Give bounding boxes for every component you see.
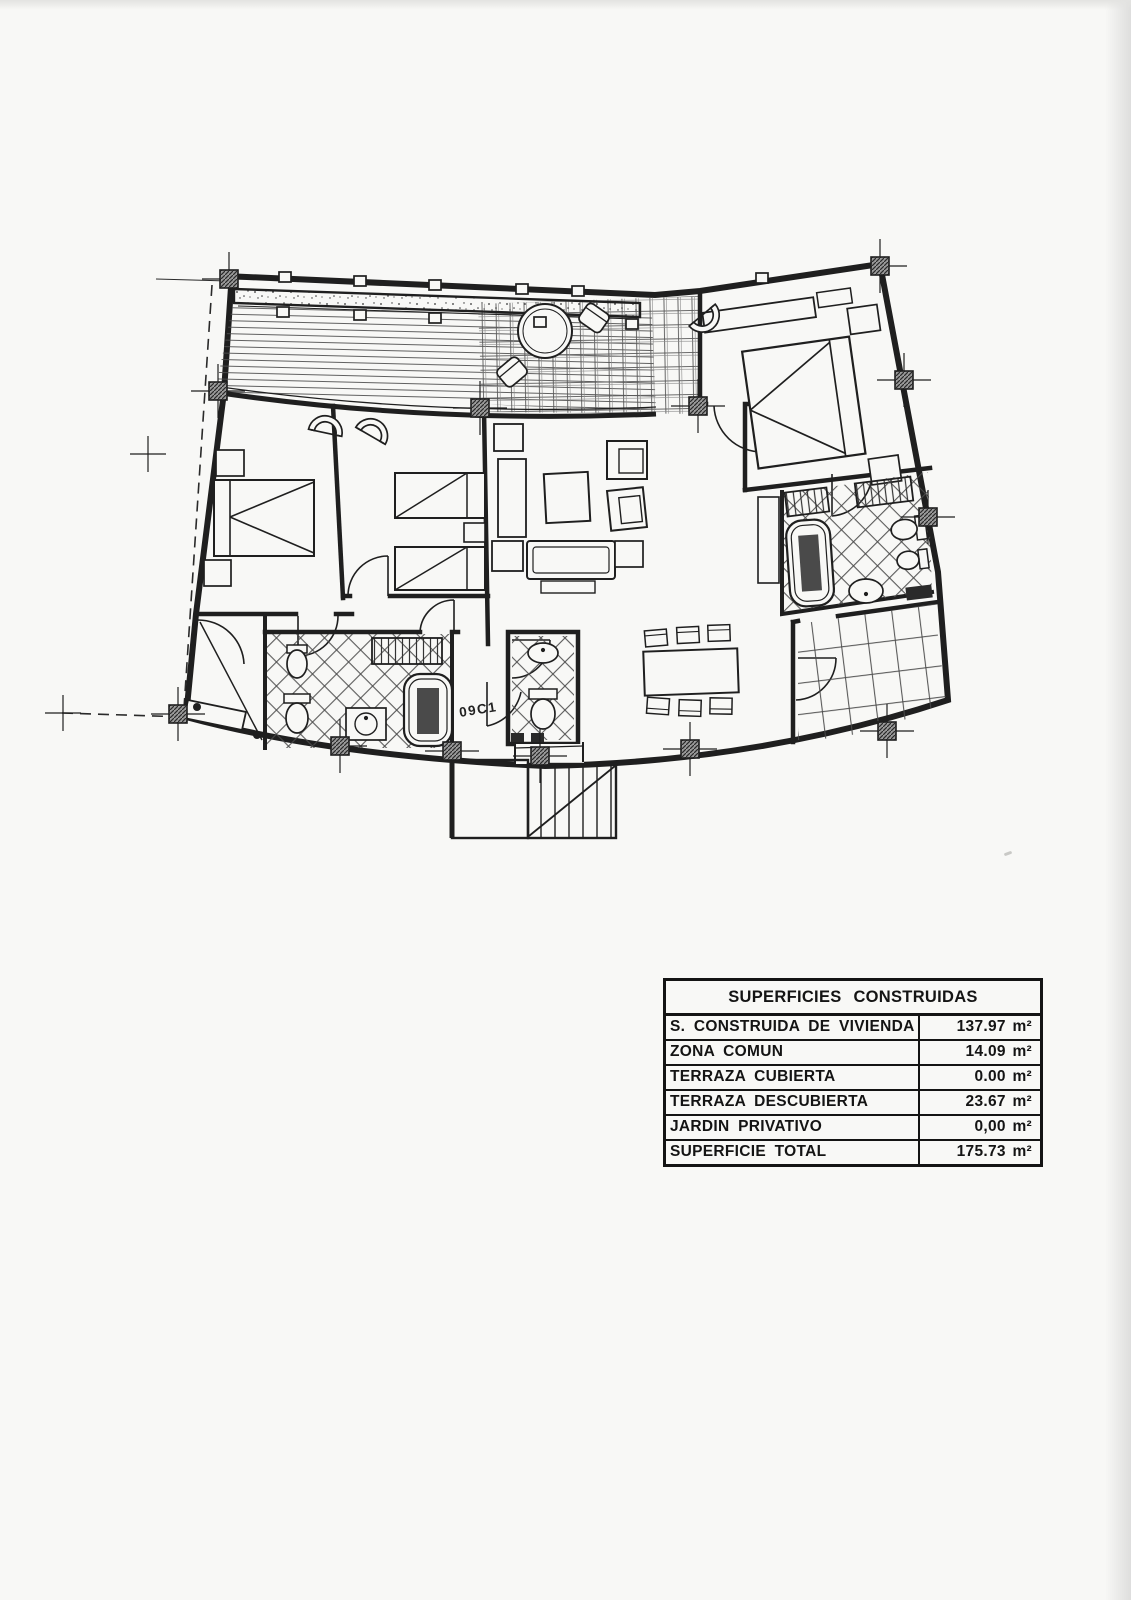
dining-table	[643, 648, 738, 695]
tiled-patio-floor	[798, 604, 946, 740]
scanned-floor-plan-page: 09C1 SUPERFICIES CONSTRUIDAS S. CONSTRUI…	[0, 0, 1131, 1600]
dining-chair	[646, 697, 669, 714]
row-label: TERRAZA DESCUBIERTA	[666, 1091, 920, 1114]
row-value: 14.09 m²	[920, 1041, 1040, 1064]
sink	[849, 579, 883, 603]
toilet	[284, 694, 310, 733]
sink	[528, 643, 558, 663]
round-table	[518, 304, 572, 358]
dining-set	[643, 625, 738, 717]
wardrobe-shelf	[785, 488, 830, 517]
row-value: 137.97 m²	[920, 1016, 1040, 1039]
single-bed	[395, 473, 485, 518]
table-row: JARDIN PRIVATIVO 0,00 m²	[666, 1116, 1040, 1141]
table-row: SUPERFICIE TOTAL 175.73 m²	[666, 1141, 1040, 1164]
double-bed	[742, 337, 865, 469]
single-bed	[395, 547, 485, 590]
row-label: ZONA COMUN	[666, 1041, 920, 1064]
sink	[346, 708, 386, 740]
row-value: 0.00 m²	[920, 1066, 1040, 1089]
row-value: 175.73 m²	[920, 1141, 1040, 1164]
coffee-table	[544, 472, 591, 523]
table-row: ZONA COMUN 14.09 m²	[666, 1041, 1040, 1066]
nightstand	[847, 304, 880, 334]
areas-table-title: SUPERFICIES CONSTRUIDAS	[666, 981, 1040, 1016]
wardrobe-shelf	[372, 638, 442, 664]
tv-cabinet	[494, 424, 523, 451]
survey-cross	[45, 695, 81, 731]
table-row: TERRAZA CUBIERTA 0.00 m²	[666, 1066, 1040, 1091]
floor-plan-drawing	[0, 0, 1131, 1600]
row-label: JARDIN PRIVATIVO	[666, 1116, 920, 1139]
row-value: 0,00 m²	[920, 1116, 1040, 1139]
toilet	[529, 689, 557, 729]
dining-chair	[710, 698, 732, 714]
table-row: S. CONSTRUIDA DE VIVIENDA 137.97 m²	[666, 1016, 1040, 1041]
tv-cabinet	[492, 541, 523, 571]
dining-chair	[644, 629, 667, 647]
nightstand	[204, 560, 231, 586]
bathroom-right	[784, 472, 933, 612]
dining-chair	[677, 626, 700, 643]
stairs	[452, 760, 616, 838]
row-label: SUPERFICIE TOTAL	[666, 1141, 920, 1164]
wc	[511, 636, 574, 742]
row-value: 23.67 m²	[920, 1091, 1040, 1114]
nightstand	[216, 450, 244, 476]
bidet	[287, 645, 307, 678]
dining-chair	[679, 700, 702, 717]
nightstand	[464, 523, 485, 542]
bathroom-left	[267, 634, 452, 748]
armchair	[607, 487, 647, 531]
side-table	[615, 541, 643, 567]
tv-cabinet	[498, 459, 526, 537]
table-row: TERRAZA DESCUBIERTA 23.67 m²	[666, 1091, 1040, 1116]
dining-chair	[708, 625, 731, 642]
survey-cross	[130, 436, 166, 472]
areas-table: SUPERFICIES CONSTRUIDAS S. CONSTRUIDA DE…	[663, 978, 1043, 1167]
row-label: S. CONSTRUIDA DE VIVIENDA	[666, 1016, 920, 1039]
row-label: TERRAZA CUBIERTA	[666, 1066, 920, 1089]
bathtub	[404, 674, 452, 746]
bathtub	[785, 519, 835, 608]
armchair	[607, 441, 647, 479]
